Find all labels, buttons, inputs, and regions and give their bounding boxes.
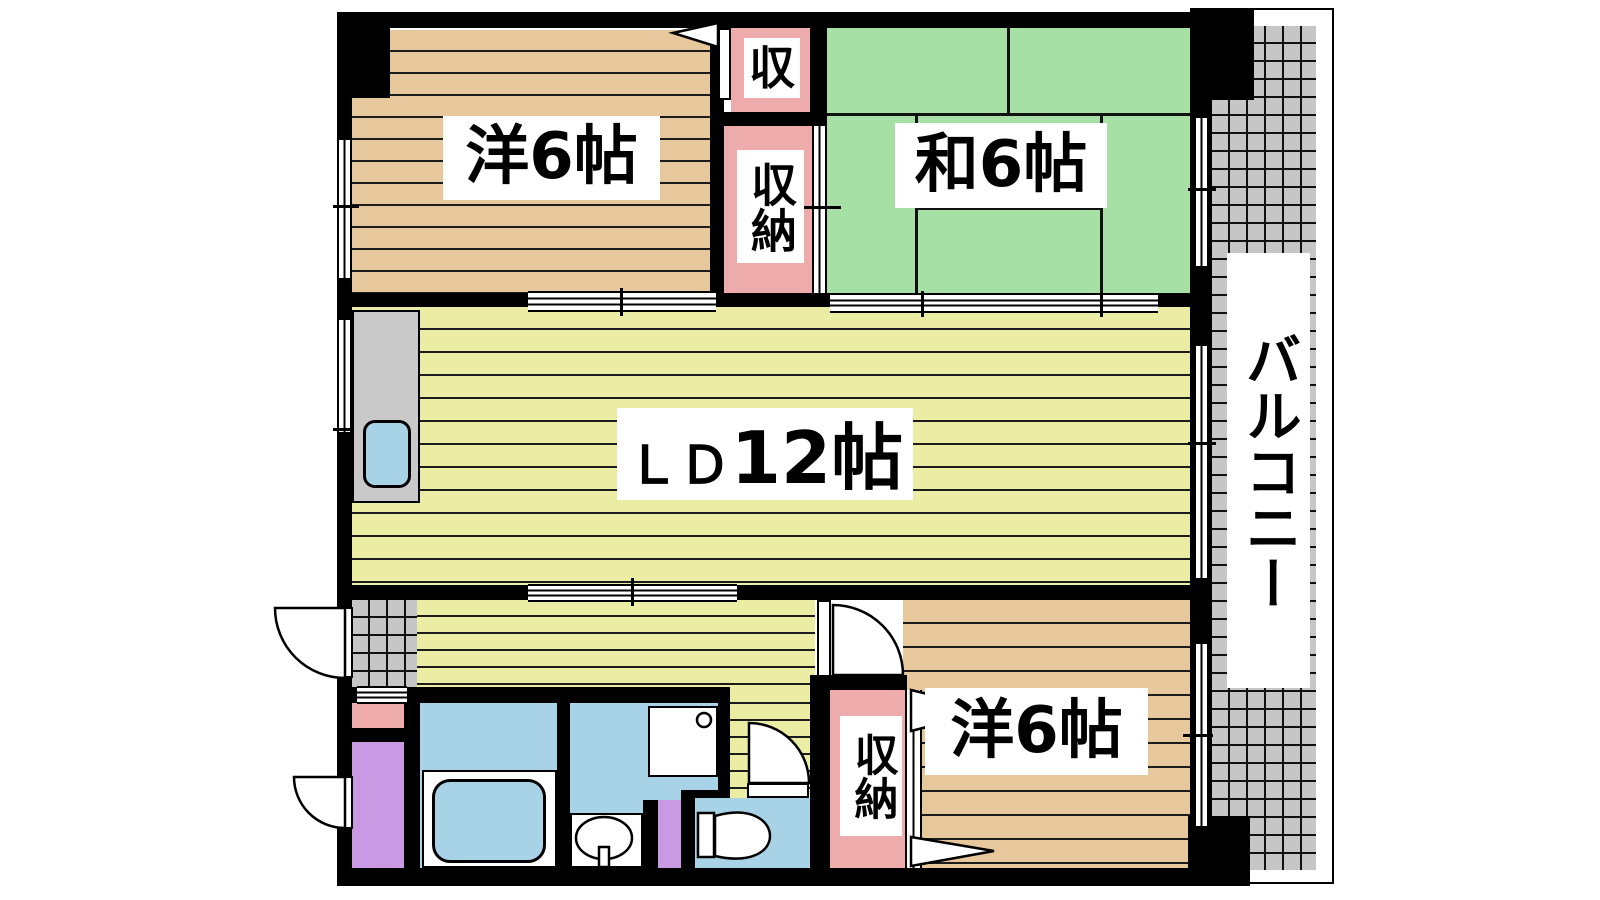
washing-machine-pan (648, 706, 718, 777)
window-tick (1188, 188, 1216, 191)
kitchen-sink (363, 420, 411, 488)
floor-plan: 洋6帖 和6帖 ＬＤ12帖 洋6帖 収 収納 収納 バルコニー (0, 0, 1600, 900)
fusuma-door-closet-upper (812, 126, 827, 293)
window-tick (1183, 734, 1213, 737)
shoe-box (352, 703, 404, 728)
window-japanese-balcony (1194, 118, 1209, 266)
toilet-door-leaf (747, 783, 809, 798)
opening-tick (1100, 291, 1103, 317)
tatami-line (1007, 28, 1010, 116)
wall (337, 868, 1212, 886)
west-bottom-door-leaf (817, 600, 831, 677)
hallway-floor (417, 600, 815, 687)
opening-tick (631, 578, 634, 606)
vanity-sink-box (570, 813, 643, 868)
wall (337, 585, 1212, 600)
label-closet-small: 収 (744, 38, 800, 98)
wall-block-bottom-right (1188, 816, 1250, 886)
opening-tick (921, 291, 924, 317)
window-tick (333, 205, 359, 208)
entrance-door-arc (275, 608, 345, 678)
hallway-column-floor (730, 687, 812, 798)
entrance-door-leaf (337, 607, 353, 678)
wall (352, 728, 404, 742)
wall (830, 675, 907, 690)
label-ld-size: 12帖 (731, 422, 903, 495)
opening-tick (620, 288, 623, 316)
wall (810, 28, 827, 126)
entrance-tile (352, 600, 417, 687)
wall (337, 12, 1212, 28)
label-living-dining: ＬＤ12帖 (617, 408, 913, 500)
label-balcony: バルコニー (1227, 253, 1310, 688)
closet-lower-door-strip (905, 690, 922, 868)
wall (718, 687, 730, 798)
wall-corner-notch (337, 12, 390, 98)
wall (643, 800, 658, 868)
wall-block-top-right (1192, 10, 1254, 100)
label-room-japanese: 和6帖 (895, 123, 1107, 208)
sliding-door-japanese-ld (830, 293, 1158, 313)
wall (810, 675, 830, 868)
window-ld-balcony (1194, 346, 1209, 578)
wall (681, 798, 695, 868)
window-tick (1188, 442, 1216, 445)
window-tick (803, 206, 841, 209)
window-ld-left (337, 320, 352, 432)
label-room-west-top: 洋6帖 (443, 116, 660, 200)
wall (557, 703, 570, 868)
entrance-step (357, 686, 407, 704)
wall (710, 112, 812, 126)
storage-cabinet (352, 742, 404, 868)
west-bottom-door-arc (833, 605, 903, 675)
label-closet-lower: 収納 (840, 716, 902, 836)
label-ld-prefix: ＬＤ (627, 440, 731, 493)
toilet-room-floor (695, 798, 812, 868)
label-room-west-bottom: 洋6帖 (925, 688, 1148, 775)
label-closet-upper: 収納 (737, 150, 804, 263)
window-west-top (337, 140, 352, 278)
closet-small-door (718, 28, 731, 100)
wall (681, 790, 718, 798)
bathtub (432, 779, 546, 863)
service-door-leaf (337, 776, 353, 829)
pipe-space (658, 800, 681, 868)
wall (404, 687, 420, 868)
